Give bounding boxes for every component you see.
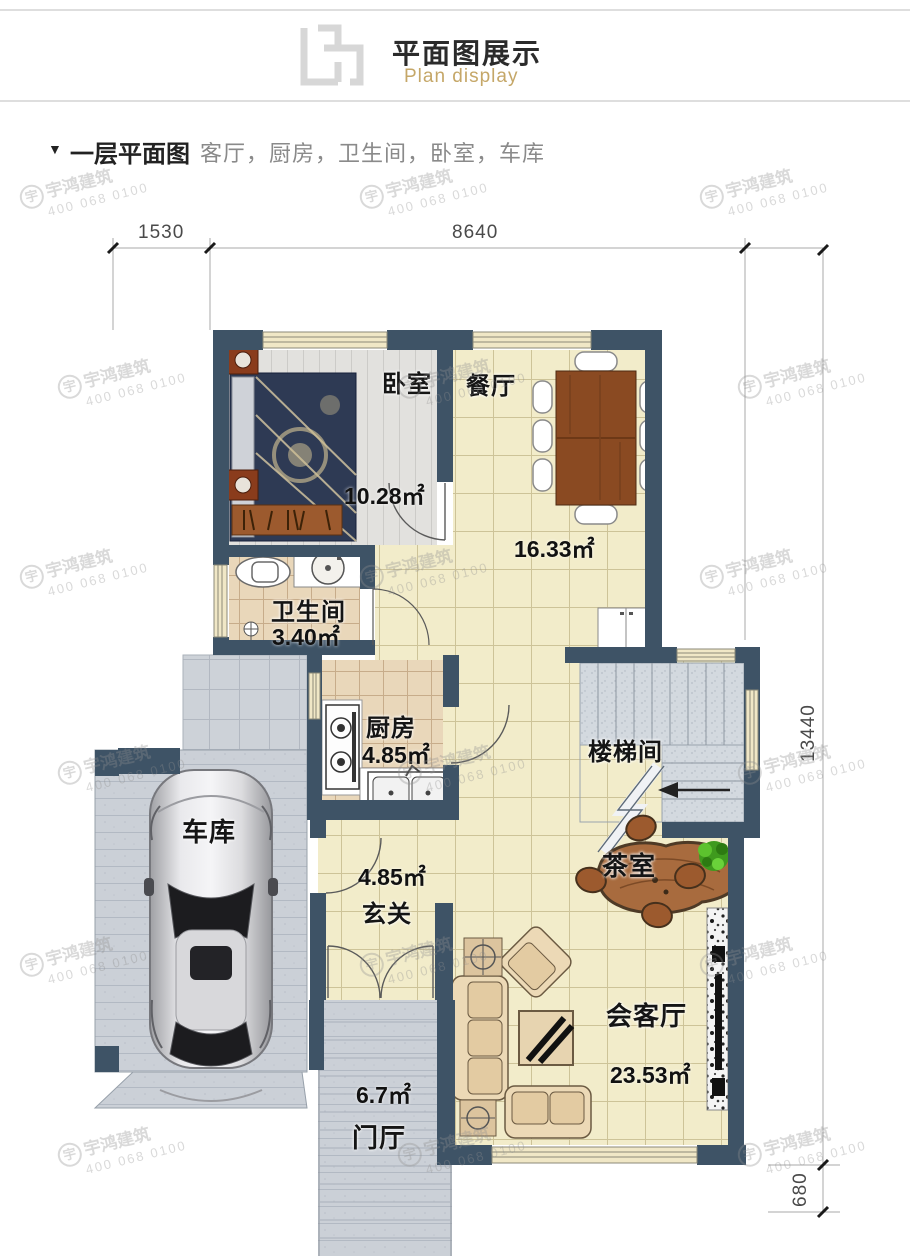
label-stairwell: 楼梯间 (588, 732, 663, 767)
label-living: 会客厅 (606, 996, 687, 1033)
label-bedroom: 卧室 (382, 364, 432, 399)
dim-right-height: 13440 (798, 704, 820, 762)
floor-plan-drawing (0, 0, 910, 1256)
area-kitchen: 4.85㎡ (362, 736, 430, 770)
side-table (460, 1100, 496, 1136)
label-garage: 车库 (182, 812, 236, 849)
label-tearoom: 茶室 (602, 846, 656, 883)
tv-wall (707, 908, 728, 1110)
dim-top-left: 1530 (138, 222, 184, 244)
label-dining: 餐厅 (466, 366, 516, 401)
label-entry: 玄关 (362, 894, 412, 929)
bookshelf (232, 505, 342, 535)
area-dining: 16.33㎡ (514, 530, 595, 564)
label-foyer: 门厅 (352, 1118, 406, 1155)
side-table (464, 938, 502, 976)
dim-bottom-offset: 680 (790, 1172, 812, 1207)
area-living: 23.53㎡ (610, 1056, 691, 1090)
area-entry: 4.85㎡ (358, 858, 426, 892)
toilet (236, 557, 290, 587)
dim-top-width: 8640 (452, 222, 498, 244)
coffee-table (519, 1011, 573, 1065)
area-foyer: 6.7㎡ (356, 1076, 411, 1110)
area-bedroom: 10.28㎡ (344, 477, 425, 511)
area-bathroom: 3.40㎡ (272, 618, 340, 652)
stove (326, 705, 359, 789)
